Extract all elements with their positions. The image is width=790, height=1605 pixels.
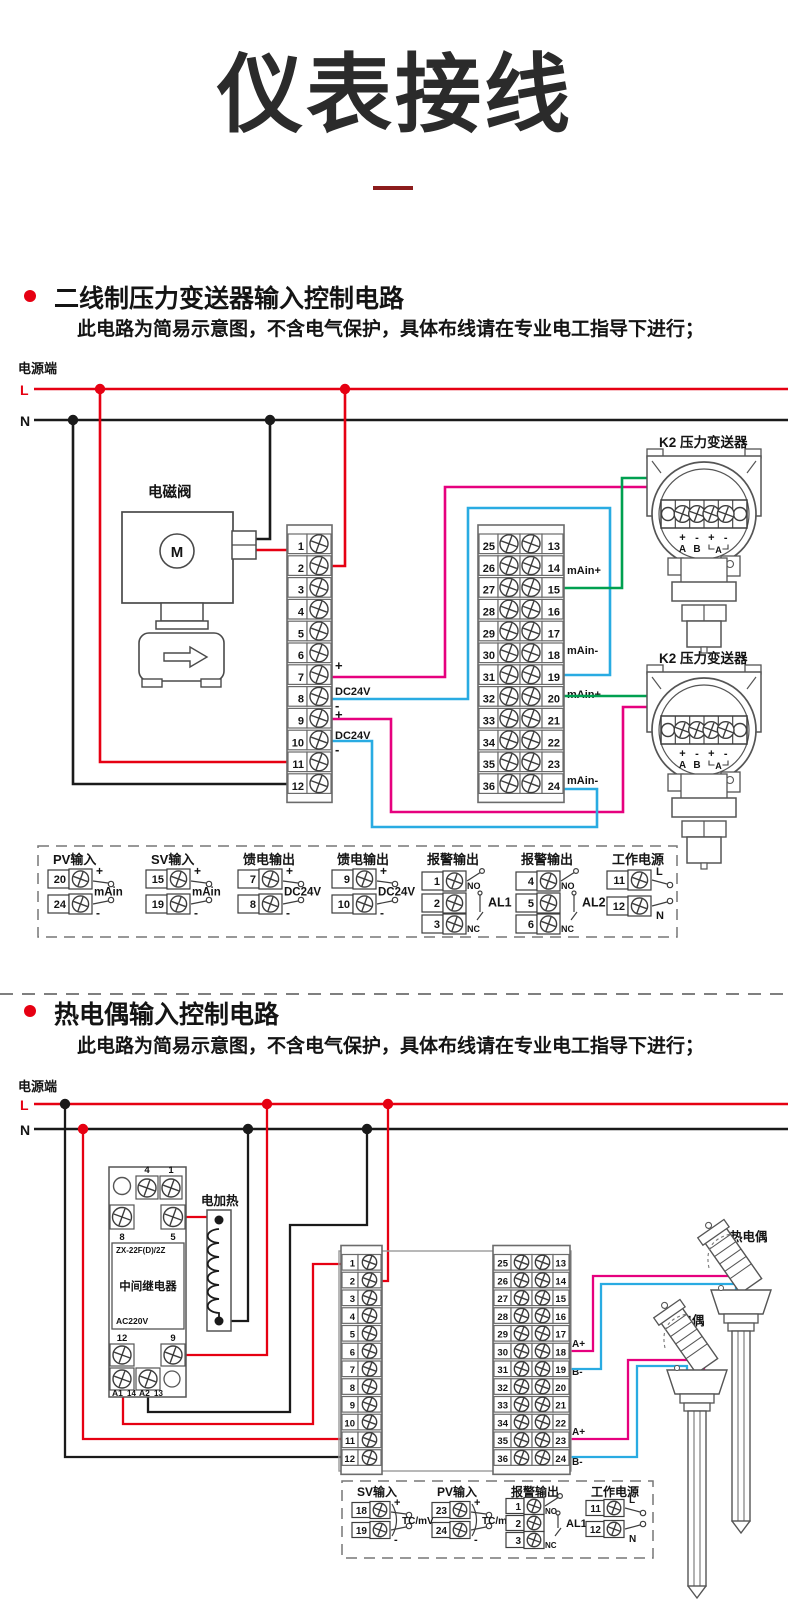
terminal-number: 31 xyxy=(497,1365,508,1376)
terminal-number: 19 xyxy=(555,1365,566,1376)
legend-polarity: + xyxy=(474,1497,480,1509)
screw-terminal-icon xyxy=(514,1344,528,1358)
terminal-number: 13 xyxy=(548,541,560,553)
junction-dot xyxy=(265,415,275,425)
wire xyxy=(253,420,270,539)
screw-terminal-icon xyxy=(522,687,540,705)
legend-polarity: + xyxy=(394,1497,400,1509)
legend-contact-label: NO xyxy=(467,881,481,891)
terminal-strip-13-36: 2513261427152816291730183119322033213422… xyxy=(478,525,564,802)
terminal-number: 21 xyxy=(555,1401,566,1412)
pressure-transmitter-2: K2 压力变送器+-+-ABA xyxy=(647,650,761,869)
legend-terminal-number: 10 xyxy=(338,899,350,911)
feed-output-label: - xyxy=(335,742,339,757)
section1-legend: PV输入20+24-mAinSV输入15+19-mAin馈电输出7+8-DC24… xyxy=(38,846,677,937)
legend-title: PV输入 xyxy=(437,1484,477,1499)
screw-terminal-icon xyxy=(540,916,556,932)
relay-terminal-number: A1 xyxy=(112,1388,123,1398)
terminal-number: 14 xyxy=(548,563,561,575)
screw-terminal-icon xyxy=(362,1362,376,1376)
terminal-number: 5 xyxy=(298,628,304,640)
screw-terminal-icon xyxy=(500,557,518,575)
legend-group-6: 工作电源11L12N xyxy=(607,852,673,922)
legend-polarity: N xyxy=(656,910,664,922)
screw-terminal-icon xyxy=(113,1370,131,1388)
screw-terminal-icon xyxy=(535,1273,549,1287)
terminal-number: 30 xyxy=(497,1347,508,1358)
legend-polarity: - xyxy=(286,906,290,920)
terminal-number: 15 xyxy=(555,1294,566,1305)
screw-terminal-icon xyxy=(514,1362,528,1376)
legend2-group-0: SV输入18+19-TC/mV xyxy=(352,1484,434,1546)
polarity-label: - xyxy=(695,532,699,544)
legend-polarity: + xyxy=(96,864,103,878)
terminal-number: 21 xyxy=(548,716,560,728)
legend-terminal-number: 5 xyxy=(528,898,534,910)
junction-dot xyxy=(362,1124,372,1134)
screw-terminal-icon xyxy=(522,644,540,662)
legend-group-3: 馈电输出9+10-DC24V xyxy=(332,852,415,920)
screw-terminal-icon xyxy=(522,666,540,684)
legend-group-1: SV输入15+19-mAin xyxy=(146,852,221,920)
screw-terminal-icon xyxy=(362,1433,376,1447)
screw-terminal-icon xyxy=(164,1346,182,1364)
pin-label: B xyxy=(693,544,700,555)
junction-dot xyxy=(383,1099,393,1109)
terminal-number: 9 xyxy=(298,716,304,728)
screw-terminal-icon xyxy=(522,731,540,749)
terminal-number: 20 xyxy=(548,694,560,706)
thermocouple-2: 热电偶 xyxy=(650,1294,727,1598)
terminal-number: 3 xyxy=(350,1294,355,1305)
screw-terminal-icon xyxy=(500,775,518,793)
screw-terminal-icon xyxy=(607,1522,621,1536)
screw-terminal-icon xyxy=(310,644,328,662)
screw-terminal-icon xyxy=(500,753,518,771)
power-terminal-label: 电源端 xyxy=(18,361,57,376)
tc-signal-label: B- xyxy=(572,1457,583,1468)
solenoid-label: 电磁阀 xyxy=(148,483,192,501)
legend-title: SV输入 xyxy=(151,852,194,867)
screw-terminal-icon xyxy=(446,873,462,889)
terminal-number: 23 xyxy=(555,1436,566,1447)
terminal-number: 16 xyxy=(555,1312,566,1323)
terminal-number: 25 xyxy=(497,1259,508,1270)
screw-terminal-icon xyxy=(607,1501,621,1515)
screw-terminal-icon xyxy=(362,1326,376,1340)
pin-label: A xyxy=(679,544,686,555)
legend-contact-label: NC xyxy=(561,924,574,934)
legend2-group-2: 报警输出1NO23NCAL1 xyxy=(506,1484,587,1550)
legend-title: 报警输出 xyxy=(511,1484,559,1499)
screw-terminal-icon xyxy=(162,1179,180,1197)
screw-terminal-icon xyxy=(310,578,328,596)
screw-terminal-icon xyxy=(310,600,328,618)
terminal-number: 33 xyxy=(497,1401,508,1412)
screw-terminal-icon xyxy=(356,896,372,912)
section2-legend: SV输入18+19-TC/mVPV输入23+24-TC/mV报警输出1NO23N… xyxy=(342,1481,653,1558)
junction-dot xyxy=(95,384,105,394)
relay-terminal-number: 8 xyxy=(119,1232,124,1243)
current-input-label: mAin+ xyxy=(567,565,601,577)
legend-signal-label: mAin xyxy=(192,887,221,899)
tc-signal-label: A+ xyxy=(572,1339,585,1350)
screw-terminal-icon xyxy=(362,1379,376,1393)
motor-m-label: M xyxy=(171,544,184,561)
screw-terminal-icon xyxy=(446,895,462,911)
terminal-number: 16 xyxy=(548,607,560,619)
legend-signal-label: mAin xyxy=(94,887,123,899)
screw-terminal-icon xyxy=(535,1415,549,1429)
legend-terminal-number: 18 xyxy=(356,1506,368,1517)
screw-terminal-icon xyxy=(535,1326,549,1340)
terminal-number: 6 xyxy=(298,650,304,662)
terminal-strip2-1-12: 123456789101112 xyxy=(341,1246,382,1475)
screw-terminal-icon xyxy=(535,1450,549,1464)
screw-terminal-icon xyxy=(514,1255,528,1269)
terminal-number: 27 xyxy=(497,1294,508,1305)
terminal-number: 17 xyxy=(548,628,560,640)
legend2-group-3: 工作电源11L12N xyxy=(586,1484,646,1545)
screw-terminal-icon xyxy=(362,1415,376,1429)
legend-terminal-number: 19 xyxy=(356,1526,368,1537)
terminal-number: 2 xyxy=(298,563,304,575)
polarity-label: + xyxy=(679,532,685,544)
terminal-number: 26 xyxy=(497,1276,508,1287)
legend-polarity: - xyxy=(474,1534,478,1546)
screw-terminal-icon xyxy=(139,1370,157,1388)
screw-terminal-icon xyxy=(453,1523,467,1537)
electric-heater: 电加热 xyxy=(201,1193,239,1331)
terminal-number: 15 xyxy=(548,585,560,597)
terminal-number: 22 xyxy=(548,737,560,749)
terminal-number: 35 xyxy=(497,1436,508,1447)
screw-terminal-icon xyxy=(362,1397,376,1411)
screw-terminal-icon xyxy=(310,557,328,575)
terminal-number: 12 xyxy=(292,781,304,793)
terminal-number: 33 xyxy=(483,716,495,728)
junction-dot xyxy=(243,1124,253,1134)
screw-terminal-icon xyxy=(310,775,328,793)
terminal-number: 26 xyxy=(483,563,495,575)
legend-terminal-number: 8 xyxy=(250,899,256,911)
screw-terminal-icon xyxy=(522,600,540,618)
legend-polarity: L xyxy=(656,866,663,878)
legend-terminal-number: 6 xyxy=(528,919,534,931)
screw-terminal-icon xyxy=(535,1362,549,1376)
screw-terminal-icon xyxy=(514,1433,528,1447)
screw-terminal-icon xyxy=(522,578,540,596)
legend-title: SV输入 xyxy=(357,1484,397,1499)
terminal-number: 2 xyxy=(350,1276,355,1287)
screw-terminal-icon xyxy=(631,898,647,914)
power-terminal-label: 电源端 xyxy=(18,1079,57,1094)
screw-terminal-icon xyxy=(362,1308,376,1322)
relay-voltage: AC220V xyxy=(116,1316,148,1326)
screw-terminal-icon xyxy=(535,1397,549,1411)
junction-dot xyxy=(340,384,350,394)
screw-terminal-icon xyxy=(138,1179,156,1197)
legend-terminal-number: 7 xyxy=(250,874,256,886)
legend-terminal-number: 1 xyxy=(434,876,440,888)
terminal-number: 9 xyxy=(350,1401,355,1412)
screw-terminal-icon xyxy=(362,1450,376,1464)
terminal-number: 14 xyxy=(555,1276,566,1287)
screw-terminal-icon xyxy=(362,1291,376,1305)
screw-terminal-icon xyxy=(500,622,518,640)
screw-terminal-icon xyxy=(72,896,88,912)
screw-terminal-icon xyxy=(514,1379,528,1393)
screw-terminal-icon xyxy=(522,709,540,727)
transmitter-title: K2 压力变送器 xyxy=(659,650,748,666)
legend-terminal-number: 3 xyxy=(434,919,440,931)
terminal-number: 5 xyxy=(350,1330,356,1341)
polarity-label: + xyxy=(708,748,714,760)
line-n-label: N xyxy=(20,1122,30,1138)
screw-terminal-icon xyxy=(362,1255,376,1269)
legend-terminal-number: 24 xyxy=(436,1526,448,1537)
legend-signal-label: DC24V xyxy=(284,887,321,899)
screw-terminal-icon xyxy=(527,1499,541,1513)
screw-terminal-icon xyxy=(514,1291,528,1305)
legend-terminal-number: 12 xyxy=(613,901,625,913)
terminal-number: 10 xyxy=(344,1418,355,1429)
line-n-label: N xyxy=(20,413,30,429)
screw-terminal-icon xyxy=(522,753,540,771)
screw-terminal-icon xyxy=(717,722,734,739)
legend-terminal-number: 3 xyxy=(515,1536,521,1547)
screw-terminal-icon xyxy=(500,709,518,727)
legend-polarity: N xyxy=(629,1534,636,1545)
screw-terminal-icon xyxy=(717,506,734,523)
screw-terminal-icon xyxy=(540,895,556,911)
screw-terminal-icon xyxy=(522,535,540,553)
legend-title: 工作电源 xyxy=(612,852,664,867)
feed-output-label: + xyxy=(335,658,343,673)
legend-terminal-number: 11 xyxy=(613,875,625,887)
junction-dot xyxy=(262,1099,272,1109)
solenoid-valve: 电磁阀M xyxy=(122,483,256,687)
pin-label: A xyxy=(715,761,722,771)
screw-terminal-icon xyxy=(535,1255,549,1269)
relay-terminal-number: 4 xyxy=(144,1165,150,1176)
screw-terminal-icon xyxy=(514,1397,528,1411)
screw-terminal-icon xyxy=(362,1273,376,1287)
relay-model: ZX-22F(D)/2Z xyxy=(116,1246,165,1255)
screw-terminal-icon xyxy=(540,873,556,889)
transmitter-title: K2 压力变送器 xyxy=(659,434,748,450)
terminal-strip2-13-36: 2513261427152816291730183119322033213422… xyxy=(493,1246,570,1475)
legend-contact-label: NC xyxy=(545,1541,557,1550)
relay-terminal-number: 14 xyxy=(127,1389,136,1398)
junction-dot xyxy=(215,1317,224,1326)
screw-terminal-icon xyxy=(373,1503,387,1517)
tc-signal-label: A+ xyxy=(572,1427,585,1438)
legend-group-2: 馈电输出7+8-DC24V xyxy=(238,852,321,920)
relay-terminal-number: 5 xyxy=(170,1232,176,1243)
terminal-number: 34 xyxy=(483,737,496,749)
screw-terminal-icon xyxy=(522,622,540,640)
terminal-number: 28 xyxy=(497,1312,508,1323)
screw-terminal-icon xyxy=(310,753,328,771)
screw-terminal-icon xyxy=(446,916,462,932)
pin-label: B xyxy=(693,760,700,771)
terminal-number: 36 xyxy=(483,781,495,793)
thermocouple-cap xyxy=(650,1294,720,1375)
legend-terminal-number: 9 xyxy=(344,874,350,886)
screw-terminal-icon xyxy=(362,1344,376,1358)
terminal-number: 19 xyxy=(548,672,560,684)
legend2-group-1: PV输入23+24-TC/mV xyxy=(432,1484,514,1546)
legend-contact-label: NO xyxy=(561,881,575,891)
terminal-number: 1 xyxy=(298,541,304,553)
legend-terminal-number: 4 xyxy=(528,876,535,888)
legend-group-5: 报警输出4NO56NCAL2 xyxy=(516,852,606,934)
terminal-number: 10 xyxy=(292,737,304,749)
screw-terminal-icon xyxy=(514,1450,528,1464)
terminal-number: 36 xyxy=(497,1454,508,1465)
current-input-label: mAin- xyxy=(567,775,599,787)
screw-terminal-icon xyxy=(500,600,518,618)
terminal-number: 22 xyxy=(555,1418,566,1429)
heater-label: 电加热 xyxy=(201,1193,239,1208)
legend-group-0: PV输入20+24-mAin xyxy=(48,852,123,920)
relay-terminal-number: 13 xyxy=(154,1389,163,1398)
legend-polarity: + xyxy=(380,864,387,878)
polarity-label: - xyxy=(724,532,728,544)
screw-terminal-icon xyxy=(535,1344,549,1358)
polarity-label: - xyxy=(724,748,728,760)
terminal-number: 27 xyxy=(483,585,495,597)
screw-terminal-icon xyxy=(500,687,518,705)
current-input-label: mAin- xyxy=(567,645,599,657)
legend-terminal-number: 2 xyxy=(434,898,440,910)
relay-terminal-number: 12 xyxy=(117,1333,128,1344)
legend-contact-label: NC xyxy=(467,924,480,934)
relay-terminal-number: A2 xyxy=(139,1388,150,1398)
line-l-label: L xyxy=(20,1097,29,1113)
screw-terminal-icon xyxy=(72,871,88,887)
legend-terminal-number: 1 xyxy=(515,1502,521,1513)
junction-dot xyxy=(68,415,78,425)
line-l-label: L xyxy=(20,382,29,398)
terminal-number: 7 xyxy=(350,1365,355,1376)
terminal-number: 4 xyxy=(298,607,305,619)
pin-label: A xyxy=(679,760,686,771)
legend-alarm-label: AL1 xyxy=(488,896,512,910)
polarity-label: + xyxy=(679,748,685,760)
legend-polarity: + xyxy=(286,864,293,878)
screw-terminal-icon xyxy=(310,622,328,640)
terminal-number: 29 xyxy=(483,628,495,640)
legend-alarm-label: AL1 xyxy=(566,1518,587,1530)
screw-terminal-icon xyxy=(113,1346,131,1364)
relay-name: 中间继电器 xyxy=(119,1279,177,1293)
legend-group-4: 报警输出1NO23NCAL1 xyxy=(422,852,512,934)
polarity-label: - xyxy=(695,748,699,760)
screw-terminal-icon xyxy=(500,666,518,684)
screw-terminal-icon xyxy=(535,1308,549,1322)
screw-terminal-icon xyxy=(535,1291,549,1305)
legend-polarity: L xyxy=(629,1495,635,1506)
terminal-number: 8 xyxy=(350,1383,355,1394)
screw-terminal-icon xyxy=(310,666,328,684)
legend-alarm-label: AL2 xyxy=(582,896,606,910)
legend-terminal-number: 12 xyxy=(590,1525,602,1536)
legend-signal-label: DC24V xyxy=(378,887,415,899)
terminal-number: 23 xyxy=(548,759,560,771)
screw-terminal-icon xyxy=(631,872,647,888)
terminal-number: 24 xyxy=(555,1454,566,1465)
screw-terminal-icon xyxy=(356,871,372,887)
terminal-number: 11 xyxy=(345,1436,356,1447)
terminal-number: 1 xyxy=(350,1259,356,1270)
terminal-number: 17 xyxy=(555,1330,566,1341)
terminal-number: 32 xyxy=(497,1383,508,1394)
legend-polarity: + xyxy=(194,864,201,878)
wire xyxy=(319,508,610,699)
screw-terminal-icon xyxy=(522,775,540,793)
legend-terminal-number: 19 xyxy=(152,899,164,911)
legend-polarity: - xyxy=(194,906,198,920)
legend-title: 报警输出 xyxy=(521,852,573,867)
screw-terminal-icon xyxy=(535,1379,549,1393)
legend-terminal-number: 11 xyxy=(590,1504,601,1515)
terminal-number: 20 xyxy=(555,1383,566,1394)
pressure-transmitter-1: K2 压力变送器+-+-ABA xyxy=(647,434,761,653)
legend-polarity: - xyxy=(96,906,100,920)
legend-title: 报警输出 xyxy=(427,852,479,867)
screw-terminal-icon xyxy=(310,709,328,727)
legend-terminal-number: 24 xyxy=(54,899,67,911)
screw-terminal-icon xyxy=(514,1326,528,1340)
screw-terminal-icon xyxy=(500,578,518,596)
junction-dot xyxy=(78,1124,88,1134)
terminal-number: 11 xyxy=(292,759,304,771)
legend-terminal-number: 20 xyxy=(54,874,66,886)
terminal-number: 13 xyxy=(555,1259,566,1270)
screw-terminal-icon xyxy=(500,731,518,749)
screw-terminal-icon xyxy=(522,557,540,575)
legend-terminal-number: 15 xyxy=(152,874,164,886)
legend-polarity: - xyxy=(394,1534,398,1546)
screw-terminal-icon xyxy=(170,871,186,887)
terminal-number: 18 xyxy=(548,650,560,662)
screw-terminal-icon xyxy=(310,731,328,749)
legend-polarity: - xyxy=(380,906,384,920)
terminal-number: 30 xyxy=(483,650,495,662)
terminal-number: 18 xyxy=(555,1347,566,1358)
junction-dot xyxy=(60,1099,70,1109)
terminal-number: 12 xyxy=(344,1454,355,1465)
polarity-label: + xyxy=(708,532,714,544)
screw-terminal-icon xyxy=(527,1516,541,1530)
pin-label: A xyxy=(715,545,722,555)
screw-terminal-icon xyxy=(164,1208,183,1227)
terminal-number: 7 xyxy=(298,672,304,684)
intermediate-relay: 4185ZX-22F(D)/2Z中间继电器AC220V129A114A213 xyxy=(109,1165,186,1398)
screw-terminal-icon xyxy=(262,871,278,887)
legend-title: PV输入 xyxy=(53,852,96,867)
screw-terminal-icon xyxy=(170,896,186,912)
legend-terminal-number: 2 xyxy=(515,1519,521,1530)
screw-terminal-icon xyxy=(514,1308,528,1322)
terminal-number: 4 xyxy=(350,1312,356,1323)
wiring-diagram-canvas: 电源端LN+DC24V-+DC24V-mAin+mAin-mAin+mAin-电… xyxy=(0,0,790,1605)
terminal-strip-1-12: 123456789101112 xyxy=(287,525,332,802)
terminal-number: 31 xyxy=(483,672,495,684)
terminal-number: 24 xyxy=(548,781,561,793)
